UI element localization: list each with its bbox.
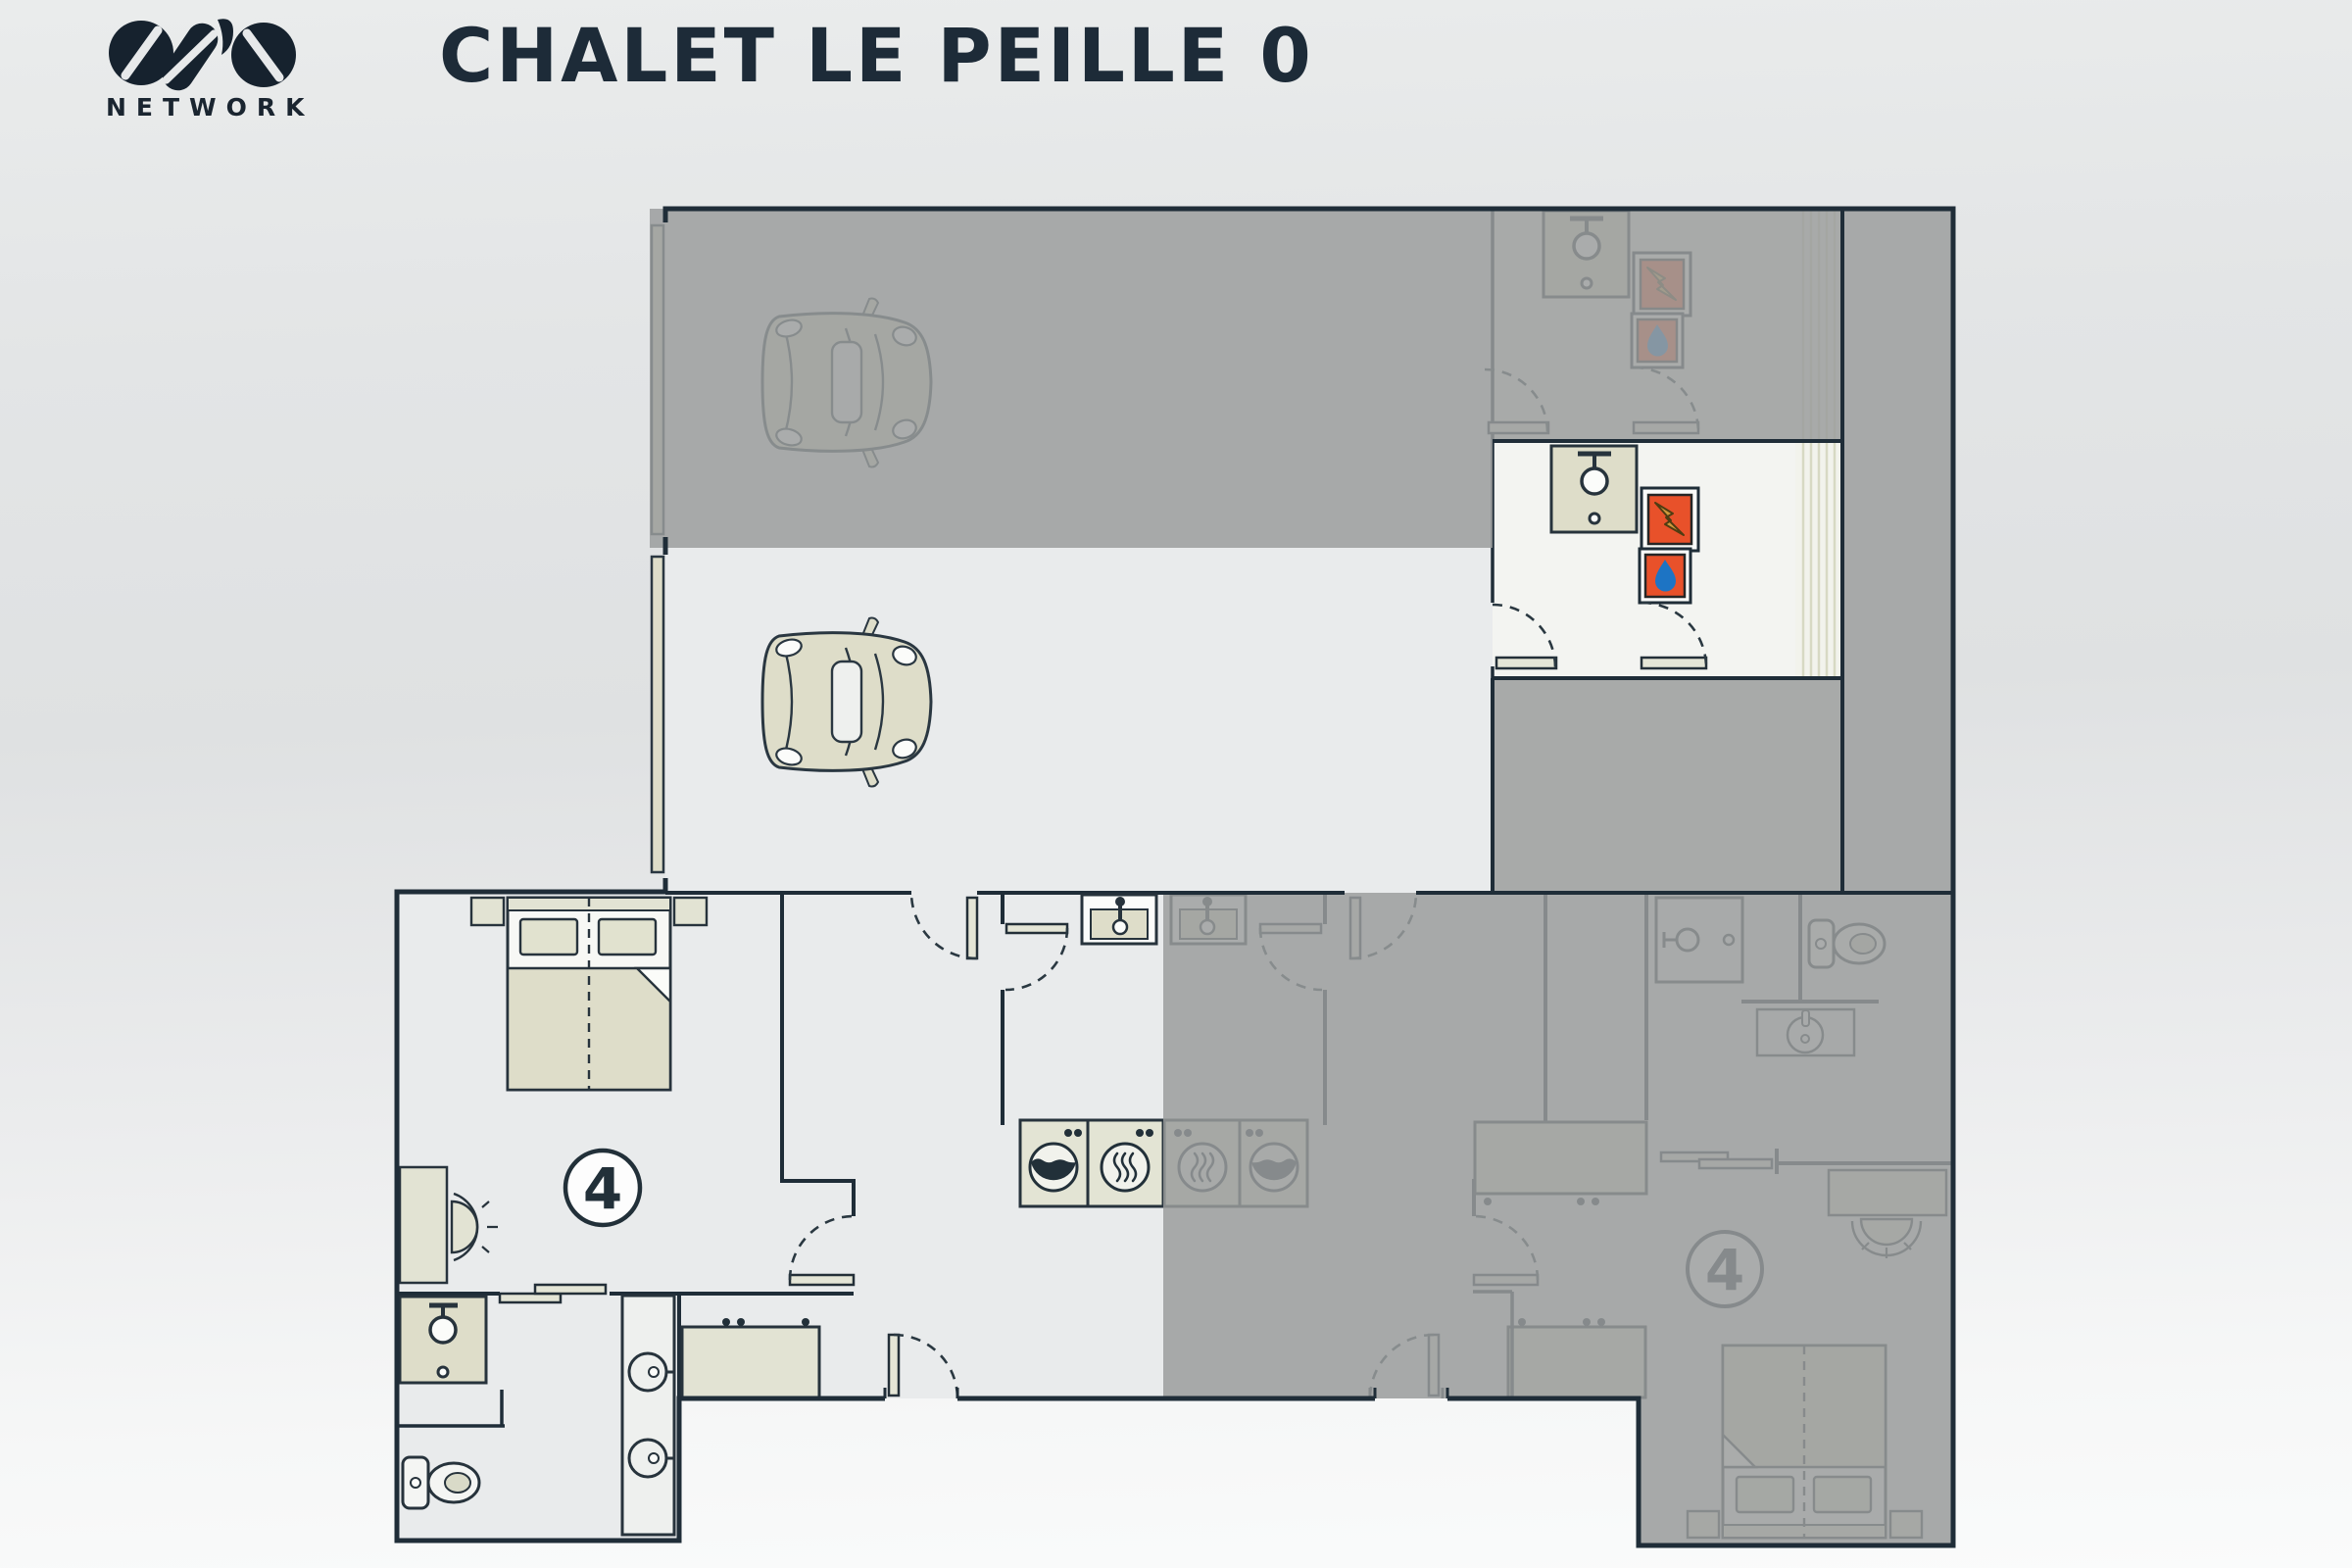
floorplan-page: NETWORK CHALET LE PEILLE 0 [0,0,2352,1568]
nightstand-icon [471,898,504,925]
garage-door [652,557,663,872]
sink-icon [400,1297,486,1383]
nightstand-icon [674,898,707,925]
pillow-icon [520,919,577,955]
faded-under-utility-band [1493,678,1842,893]
faded-utility-band [1493,209,1842,441]
toilet-icon [403,1457,479,1508]
faded-bottom-right-block [1163,893,1953,1545]
capacity-badge-icon: 4 [565,1151,640,1225]
bedroom-capacity-badge: 4 [583,1155,622,1222]
faded-right-column [1842,209,1953,893]
car-icon [762,618,931,787]
faded-garage-band [650,209,1493,548]
sliding-door-icon [500,1294,561,1302]
desk-icon [400,1167,447,1283]
sliding-door-icon [535,1285,606,1294]
pillow-icon [599,919,656,955]
wardrobe-cabinet-icon [622,1296,674,1535]
floorplan-svg: 4 4 [0,0,2352,1568]
